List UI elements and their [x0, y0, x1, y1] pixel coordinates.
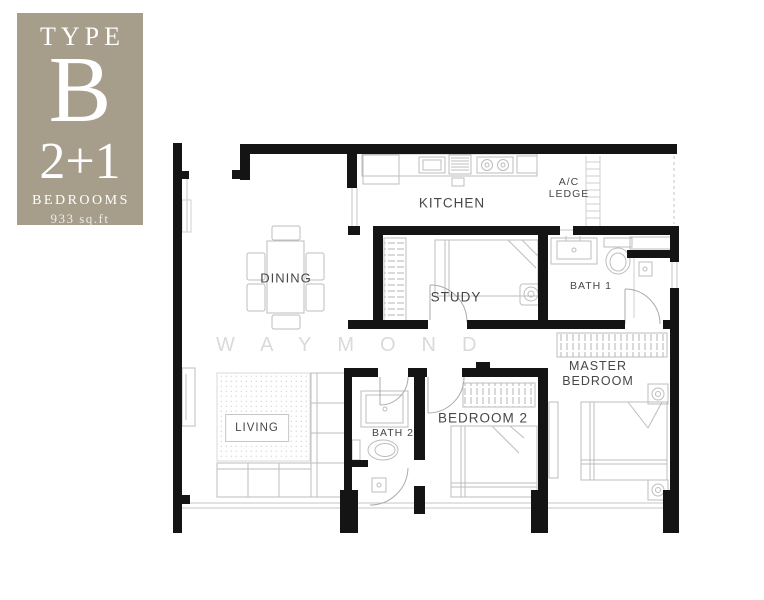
room-label-bath1: BATH 1 — [570, 280, 612, 292]
room-label-bath2: BATH 2 — [372, 427, 414, 439]
bath2-fixtures — [352, 391, 408, 492]
room-label-bedroom2: BEDROOM 2 — [438, 411, 528, 426]
bedroom2-furniture — [451, 383, 537, 497]
master-line1: MASTER — [562, 359, 634, 374]
room-label-dining: DINING — [260, 271, 312, 286]
floor-plan-drawing — [0, 0, 764, 600]
study-furniture — [384, 238, 542, 324]
room-label-living: LIVING — [225, 414, 289, 442]
ac-ledge-line2: LEDGE — [549, 188, 590, 200]
floor-plan-page: TYPE B 2+1 BEDROOMS 933 sq.ft WAYMOND — [0, 0, 764, 600]
room-label-kitchen: KITCHEN — [419, 196, 485, 211]
room-label-master-bedroom: MASTER BEDROOM — [562, 359, 634, 389]
ac-ledge-line1: A/C — [549, 176, 590, 188]
master-line2: BEDROOM — [562, 374, 634, 389]
kitchen-counter — [362, 154, 537, 186]
room-label-ac-ledge: A/C LEDGE — [549, 176, 590, 200]
room-label-study: STUDY — [431, 290, 482, 305]
